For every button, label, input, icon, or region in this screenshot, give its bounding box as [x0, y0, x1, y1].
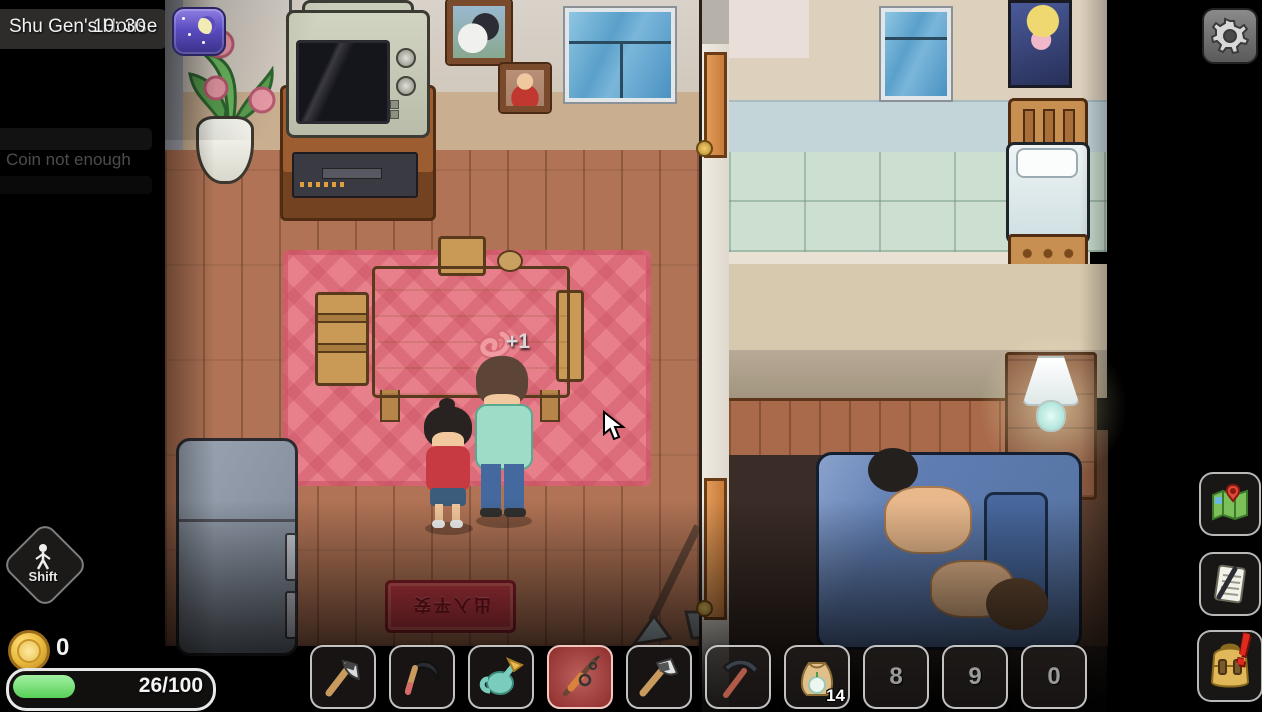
journal-button[interactable] — [1199, 552, 1261, 616]
lamp-bulb — [1036, 400, 1066, 432]
hotbar-slot-7-seed-bag[interactable]: 14 — [784, 645, 850, 709]
hatchet-icon — [321, 655, 365, 699]
hotbar-slot-0[interactable]: 0 — [1021, 645, 1087, 709]
toast-background — [0, 176, 152, 194]
pickup-popup: +1 — [506, 330, 530, 354]
tv-knob — [396, 76, 416, 96]
shift-key-label: Shift — [29, 569, 58, 584]
map-icon — [1209, 483, 1251, 525]
hotbar-slot-5-axe[interactable] — [626, 645, 692, 709]
shift-key-content: Shift — [14, 534, 72, 592]
watering-can-icon — [478, 655, 524, 699]
slot-number: 9 — [968, 663, 981, 691]
hotbar-slot-4-fishing-rod[interactable] — [547, 645, 613, 709]
kid-bed-pillow — [1016, 148, 1078, 178]
doormat[interactable]: 出入平安 — [385, 580, 516, 633]
night-moon-icon — [172, 7, 226, 56]
living-room-window — [565, 8, 675, 102]
tv-knob — [396, 48, 416, 68]
man-jeans-leg — [481, 464, 501, 510]
seed-count: 14 — [826, 686, 845, 706]
axe-icon — [637, 655, 681, 699]
man-shoe — [480, 508, 502, 517]
girl-shoe — [432, 520, 445, 528]
girl-red-hoodie — [426, 446, 470, 492]
character-man[interactable] — [468, 356, 540, 532]
toast-message: Coin not enough — [6, 150, 131, 170]
pickaxe-icon — [716, 655, 760, 699]
walking-person-icon — [31, 543, 55, 571]
notes-icon — [1209, 563, 1251, 605]
slot-number: 8 — [889, 663, 902, 691]
kid-bedroom-wall-light — [729, 0, 809, 58]
hotbar-slot-2-sickle[interactable] — [389, 645, 455, 709]
game-screen: +1 出入平安 — [0, 0, 1262, 712]
tv-screen — [296, 40, 390, 124]
map-button[interactable] — [1199, 472, 1261, 536]
clock-time: 10: 30 — [93, 16, 146, 38]
door-hinge — [696, 600, 713, 617]
father-body — [884, 486, 972, 554]
hotbar-slot-8[interactable]: 8 — [863, 645, 929, 709]
fridge[interactable] — [176, 438, 298, 656]
tv-button — [390, 100, 399, 109]
door-open-bottom[interactable] — [704, 478, 727, 620]
anime-poster — [1008, 0, 1072, 88]
tv-button — [390, 110, 399, 119]
cup-on-table — [497, 250, 523, 272]
mouse-cursor — [602, 410, 628, 447]
game-world: +1 出入平安 — [0, 0, 1262, 712]
child-photo — [500, 64, 550, 112]
coin-icon — [8, 630, 50, 672]
kid-bedroom-window — [881, 8, 951, 100]
girl-shoe — [450, 520, 463, 528]
slot-number: 0 — [1047, 663, 1060, 691]
divider-wall-top — [699, 0, 732, 46]
wedding-photo — [447, 0, 511, 64]
sickle-icon — [400, 655, 444, 699]
coin-count: 0 — [56, 634, 69, 662]
character-mother[interactable] — [986, 578, 1048, 630]
man-shoe — [504, 508, 526, 517]
chair-left[interactable] — [315, 292, 369, 386]
hotbar-slot-6-pickaxe[interactable] — [705, 645, 771, 709]
fridge-handle — [285, 533, 297, 581]
character-father[interactable] — [868, 448, 918, 492]
hotbar-slot-9[interactable]: 9 — [942, 645, 1008, 709]
doormat-text: 出入平安 — [411, 594, 491, 619]
door-hinge — [696, 140, 713, 157]
gear-icon — [1211, 17, 1249, 55]
settings-button[interactable] — [1202, 8, 1258, 64]
window-bar — [620, 43, 623, 98]
fridge-handle — [285, 591, 297, 639]
window-bar — [885, 37, 947, 40]
man-jeans-leg — [504, 464, 524, 510]
hotbar-slot-1-hatchet[interactable] — [310, 645, 376, 709]
vcr-buttons — [300, 182, 346, 187]
energy-bar: 26/100 — [6, 668, 216, 711]
cursor-arrow-icon — [602, 410, 628, 442]
energy-bar-text: 26/100 — [139, 674, 203, 698]
fishing-rod-icon — [557, 654, 603, 700]
hotbar-slot-3-watering-can[interactable] — [468, 645, 534, 709]
energy-bar-fill — [13, 675, 75, 698]
toast-background — [0, 128, 152, 150]
man-teal-jacket — [475, 404, 533, 470]
vcr-slot — [322, 168, 382, 179]
